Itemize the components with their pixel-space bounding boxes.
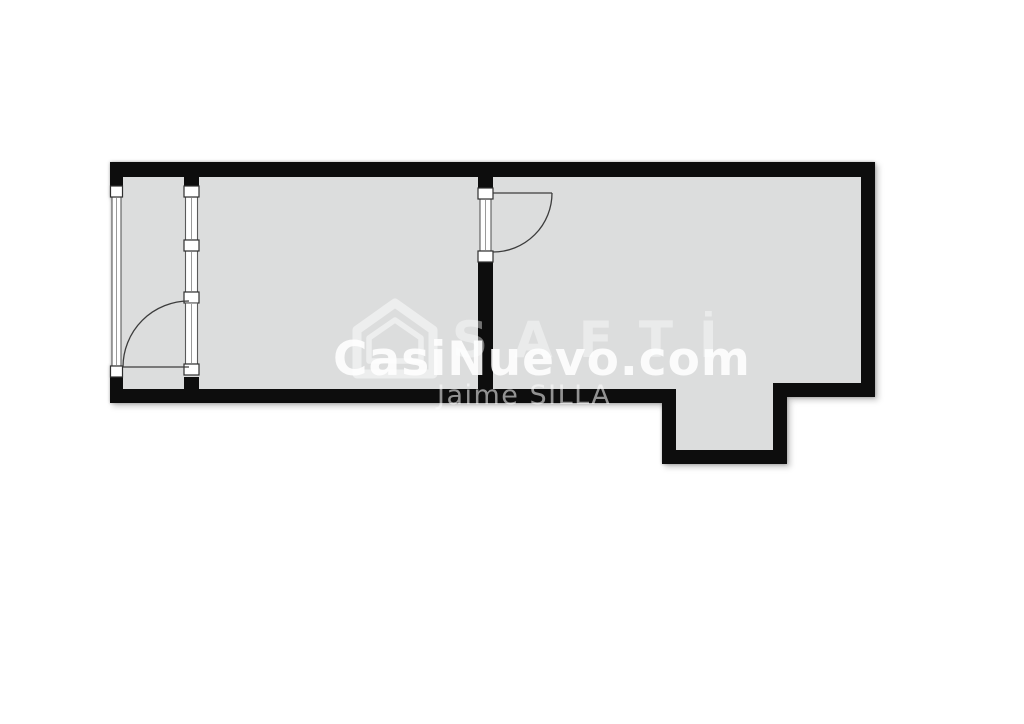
window-end-block — [111, 366, 123, 377]
partition-mullion — [184, 240, 199, 251]
wall-center-top-stub — [478, 162, 493, 188]
site-watermark: CasiNuevo.com — [333, 332, 751, 387]
stub-bottom-partition — [184, 377, 199, 403]
stub-top-left — [110, 162, 123, 188]
glazed-partition — [184, 186, 199, 375]
wall-bottom-right — [773, 383, 875, 397]
center-door-jamb — [478, 251, 493, 262]
center-door-jamb — [478, 188, 493, 199]
gallery-door-jamb — [184, 364, 199, 375]
floor-plan-svg: SAFTİ CasiNuevo.com Jaime SILLA — [0, 0, 1024, 724]
window-left-exterior — [111, 186, 123, 377]
window-end-block — [111, 186, 123, 197]
wall-right — [861, 162, 875, 397]
partition-mullion — [184, 186, 199, 197]
stub-bottom-left — [110, 377, 123, 403]
floor-plan-image: SAFTİ CasiNuevo.com Jaime SILLA — [0, 0, 1024, 724]
wall-recess-bottom — [662, 450, 787, 464]
agent-watermark: Jaime SILLA — [435, 380, 611, 411]
stub-top-partition — [184, 162, 199, 188]
center-door-frame — [478, 188, 493, 262]
